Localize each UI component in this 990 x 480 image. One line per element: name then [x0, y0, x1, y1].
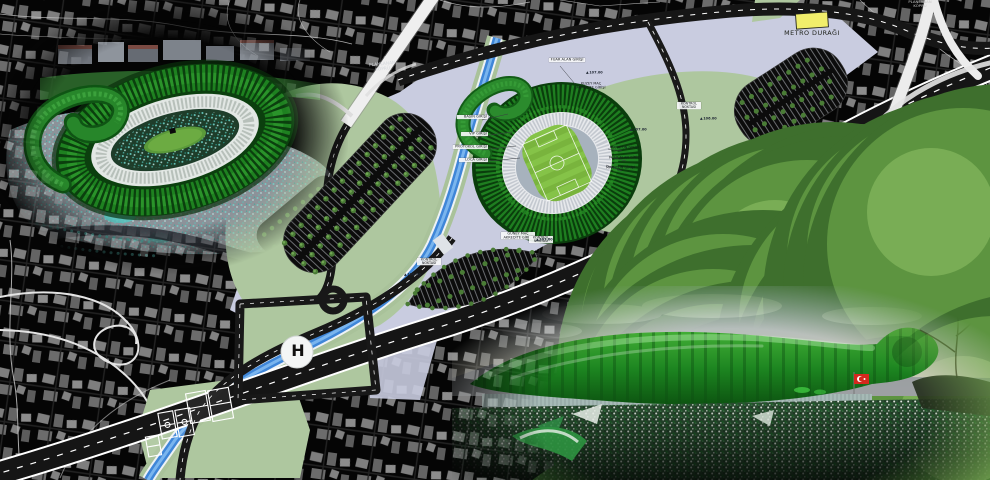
entrance-label-fuar-east: FUAR ALAN GİRİŞİ [609, 156, 639, 160]
elevation-value: 107.00 [539, 238, 553, 242]
master-plan-canvas: METRO DURAĞI PLANLANAN KÖPRÜ PLANLANAN K… [0, 0, 990, 480]
elevation-value: 107.00 [589, 71, 603, 75]
elevation-marker: ▲ 106.00 [700, 117, 717, 121]
elevation-marker: ▲ 107.00 [536, 238, 553, 242]
metro-station-box [795, 12, 828, 29]
entrance-label-protokol: PROTOKOL GİRİŞİ [453, 145, 488, 149]
elevation-marker: ▲ 107.00 [586, 71, 603, 75]
entrance-label-basin: BASIN GİRİŞİ [457, 115, 488, 119]
entrance-label-maraton-2: MARATON GİRİŞİ [606, 166, 634, 170]
entrance-label-kuzey-akredite: KUZEY MAÇ AKREDİTE GİRİŞİ [574, 82, 609, 90]
elevation-marker: ▲ 106.00 [404, 273, 421, 277]
elevation-value: 107.00 [633, 128, 647, 132]
entrance-label-fuar-north: FUAR ALAN GİRİŞİ [549, 58, 585, 62]
entrance-label-loca: LOCA GİRİŞİ [459, 158, 488, 162]
entrance-label-vip: VIP GİRİŞİ [461, 132, 488, 136]
helipad-letter: H [288, 342, 308, 360]
planned-bridge-label-ne: PLANLANAN KÖPRÜ [905, 0, 935, 8]
stadium-render-panorama [452, 286, 990, 480]
entrance-label-maraton-1: MARATON GİRİŞİ [610, 146, 638, 150]
control-point-label-east: KONTROL NOKTASI [677, 102, 701, 109]
control-point-label-west: KONTROL NOKTASI [417, 258, 441, 265]
stadium-render-aerial [0, 0, 348, 278]
elevation-value: 106.00 [703, 117, 717, 121]
elevation-value: 106.00 [407, 273, 421, 277]
elevation-marker: ▲ 107.00 [630, 128, 647, 132]
metro-station-label: METRO DURAĞI [772, 30, 852, 37]
